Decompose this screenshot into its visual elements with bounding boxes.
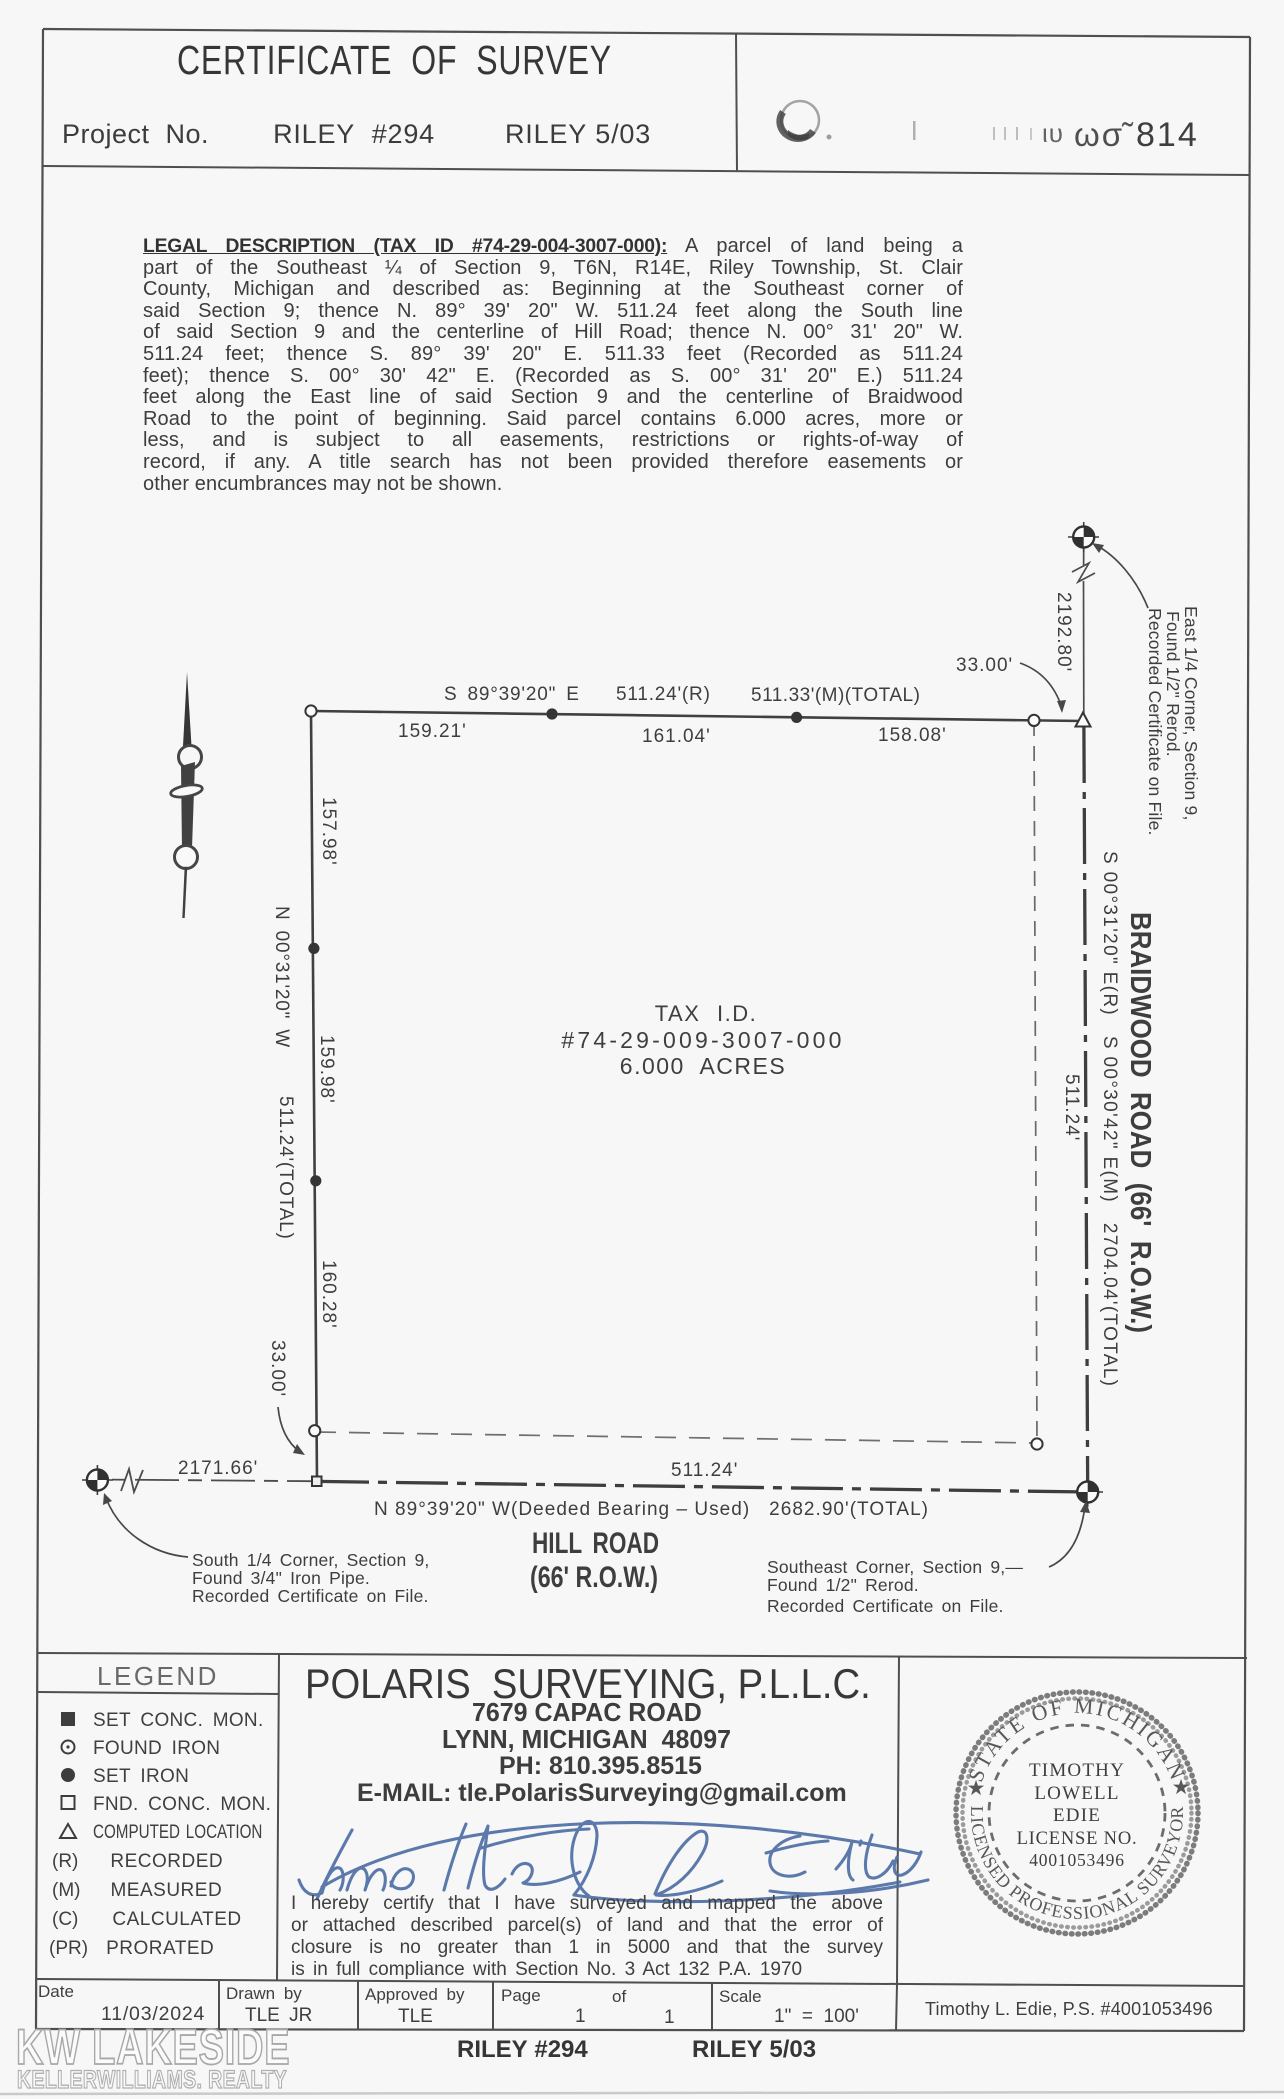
svg-text:814: 814 [1136, 116, 1199, 154]
svg-text:ιυ: ιυ [1042, 118, 1064, 148]
svg-text:LICENSE NO.: LICENSE NO. [1017, 1829, 1138, 1849]
svg-text:159.98': 159.98' [316, 1035, 337, 1104]
svg-text:157.98': 157.98' [318, 797, 339, 866]
svg-text:East 1/4 Corner, Section 9,: East 1/4 Corner, Section 9, [1181, 606, 1201, 821]
svg-text:Recorded Certificate on File.: Recorded Certificate on File. [1145, 608, 1165, 836]
svg-text:160.28': 160.28' [318, 1260, 339, 1329]
svg-text:Found 1/2" Rerod.: Found 1/2" Rerod. [1163, 611, 1183, 757]
svg-text:511.33'(M)(TOTAL): 511.33'(M)(TOTAL) [751, 685, 920, 706]
svg-text:BRAIDWOOD ROAD (66' R.O.W.): BRAIDWOOD ROAD (66' R.O.W.) [1124, 912, 1156, 1333]
svg-text:33.00': 33.00' [267, 1340, 288, 1397]
svg-text:158.08': 158.08' [878, 725, 947, 746]
svg-text:★: ★ [967, 1777, 986, 1800]
svg-text:6.000 ACRES: 6.000 ACRES [620, 1053, 786, 1079]
svg-text:★: ★ [1172, 1776, 1191, 1799]
svg-text:511.24'(R): 511.24'(R) [616, 684, 711, 705]
svg-text:HILL ROAD: HILL ROAD [532, 1527, 659, 1560]
svg-text:Recorded Certificate on File.: Recorded Certificate on File. [192, 1586, 429, 1606]
svg-text:TAX I.D.: TAX I.D. [655, 1001, 758, 1026]
svg-text:(66' R.O.W.): (66' R.O.W.) [530, 1561, 658, 1594]
svg-text:South 1/4 Corner, Section 9,: South 1/4 Corner, Section 9, [192, 1550, 429, 1570]
svg-text:159.21': 159.21' [398, 721, 467, 742]
svg-text:EDIE: EDIE [1053, 1805, 1101, 1826]
svg-text:2171.66': 2171.66' [178, 1458, 258, 1479]
svg-text:511.24': 511.24' [1061, 1074, 1082, 1141]
svg-text:Recorded Certificate on File.: Recorded Certificate on File. [767, 1596, 1004, 1616]
svg-text:Found 1/2" Rerod.: Found 1/2" Rerod. [767, 1575, 919, 1595]
svg-text:S 89°39'20" E: S 89°39'20" E [444, 684, 580, 705]
svg-text:Southeast Corner, Section 9,—: Southeast Corner, Section 9,— [767, 1557, 1023, 1577]
svg-text:N 00°31'20" W: N 00°31'20" W [271, 906, 292, 1048]
svg-text:161.04': 161.04' [642, 726, 711, 747]
svg-text:Found 3/4" Iron Pipe.: Found 3/4" Iron Pipe. [192, 1568, 370, 1588]
svg-text:511.24'(TOTAL): 511.24'(TOTAL) [275, 1096, 296, 1240]
svg-text:N 89°39'20" W(Deeded Bearing –: N 89°39'20" W(Deeded Bearing – Used) 268… [374, 1499, 928, 1520]
svg-text:4001053496: 4001053496 [1029, 1850, 1125, 1870]
svg-text:2192.80': 2192.80' [1053, 592, 1074, 672]
svg-text:#74-29-009-3007-000: #74-29-009-3007-000 [561, 1027, 844, 1053]
svg-text:TIMOTHY: TIMOTHY [1029, 1760, 1125, 1781]
svg-text:LOWELL: LOWELL [1034, 1783, 1119, 1804]
svg-text:ωσ̃: ωσ̃ [1074, 116, 1134, 153]
svg-text:33.00': 33.00' [956, 655, 1013, 676]
svg-text:S 00°31'20" E(R) S 00°30'42": S 00°31'20" E(R) S 00°30'42" E(M) 2704.0… [1099, 851, 1120, 1386]
svg-text:511.24': 511.24' [671, 1460, 738, 1481]
